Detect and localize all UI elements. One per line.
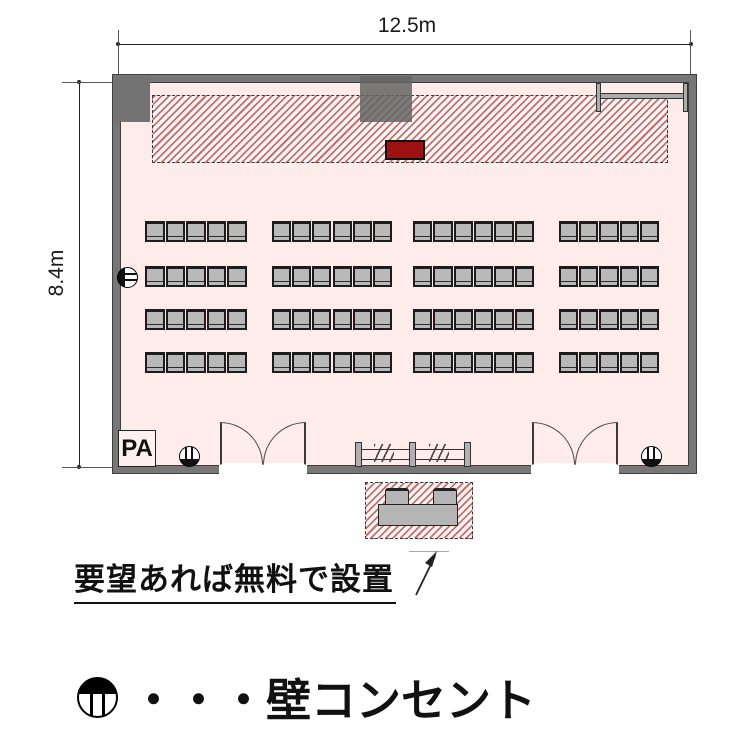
chair — [433, 352, 452, 373]
chair — [474, 352, 493, 373]
chair — [579, 352, 598, 373]
chair — [207, 352, 227, 373]
lectern — [385, 140, 425, 160]
chair — [515, 221, 534, 242]
chair — [373, 309, 392, 330]
chair — [474, 221, 493, 242]
pa-box: PA — [118, 430, 156, 467]
chair — [515, 309, 534, 330]
wall-outlet-symbol — [117, 267, 138, 288]
chair — [272, 221, 291, 242]
chair — [373, 221, 392, 242]
extension-line — [690, 30, 691, 75]
chair — [579, 309, 598, 330]
chair — [333, 352, 352, 373]
chair — [333, 266, 352, 287]
chair — [227, 352, 247, 373]
chair — [292, 221, 311, 242]
chair — [145, 309, 165, 330]
chair — [620, 352, 639, 373]
chair — [292, 352, 311, 373]
chair — [413, 309, 432, 330]
chair — [272, 266, 291, 287]
chair — [207, 309, 227, 330]
chair — [559, 221, 578, 242]
chair — [207, 221, 227, 242]
chair — [599, 266, 618, 287]
chair — [454, 309, 473, 330]
chair — [413, 266, 432, 287]
floor-plan-canvas: 12.5m 8.4m PA 要望あれば無料で設置 — [0, 0, 750, 750]
height-dimension-label: 8.4m — [45, 241, 69, 305]
free-setup-note: 要望あれば無料で設置 — [74, 554, 396, 604]
chair — [353, 309, 372, 330]
chair — [353, 266, 372, 287]
chair — [433, 221, 452, 242]
chair — [494, 352, 513, 373]
chair — [272, 309, 291, 330]
projector-screen — [360, 76, 412, 122]
chair — [494, 221, 513, 242]
chair — [333, 309, 352, 330]
chair — [186, 309, 206, 330]
chair — [353, 352, 372, 373]
annotation-arrow — [408, 547, 446, 597]
chair — [413, 221, 432, 242]
railing-hatch — [374, 444, 394, 462]
chair — [599, 352, 618, 373]
wall-outlet-symbol — [641, 446, 662, 467]
railing-hatch — [429, 444, 449, 462]
legend-label: ・・・壁コンセント — [131, 664, 536, 729]
chair — [433, 309, 452, 330]
chair — [145, 352, 165, 373]
storage-block — [114, 76, 150, 122]
reception-chair — [385, 488, 409, 505]
width-dimension-label: 12.5m — [365, 14, 449, 38]
chair — [640, 352, 659, 373]
chair — [145, 266, 165, 287]
chair — [559, 352, 578, 373]
chair — [474, 309, 493, 330]
chair — [494, 309, 513, 330]
chair — [474, 266, 493, 287]
extension-line — [62, 467, 115, 468]
chair — [227, 221, 247, 242]
chair — [640, 309, 659, 330]
chair — [454, 352, 473, 373]
chair — [620, 309, 639, 330]
whiteboard-end-post — [683, 83, 688, 112]
chair — [166, 309, 186, 330]
railing-post — [464, 442, 471, 467]
chair — [312, 309, 331, 330]
chair — [227, 309, 247, 330]
chair — [433, 266, 452, 287]
chair — [579, 221, 598, 242]
chair — [207, 266, 227, 287]
chair — [599, 309, 618, 330]
pa-label: PA — [121, 435, 153, 463]
chair — [494, 266, 513, 287]
chair — [620, 221, 639, 242]
chair — [559, 309, 578, 330]
chair — [454, 266, 473, 287]
chair — [186, 266, 206, 287]
railing-post — [409, 442, 416, 467]
railing-post — [355, 442, 362, 467]
chair — [640, 266, 659, 287]
chair — [166, 221, 186, 242]
chair — [515, 266, 534, 287]
chair — [312, 221, 331, 242]
chair — [620, 266, 639, 287]
chair — [312, 266, 331, 287]
chair — [227, 266, 247, 287]
chair — [292, 309, 311, 330]
height-dimension-line — [79, 82, 80, 467]
chair — [186, 221, 206, 242]
chair — [166, 266, 186, 287]
wall-outlet-symbol — [179, 446, 200, 467]
width-dimension-line — [118, 44, 691, 45]
chair — [373, 266, 392, 287]
chair — [454, 221, 473, 242]
chair — [166, 352, 186, 373]
whiteboard-end-post — [596, 83, 601, 112]
chair — [640, 221, 659, 242]
chair — [272, 352, 291, 373]
chair — [312, 352, 331, 373]
chair — [599, 221, 618, 242]
reception-chair — [433, 488, 457, 505]
chair — [373, 352, 392, 373]
whiteboard-rail — [598, 93, 688, 99]
chair — [579, 266, 598, 287]
reception-table — [378, 504, 458, 526]
chair — [353, 221, 372, 242]
chair — [292, 266, 311, 287]
chair — [413, 352, 432, 373]
chair — [515, 352, 534, 373]
chair — [333, 221, 352, 242]
chair — [186, 352, 206, 373]
wall-outlet-icon — [77, 677, 118, 718]
chair — [559, 266, 578, 287]
chair — [145, 221, 165, 242]
